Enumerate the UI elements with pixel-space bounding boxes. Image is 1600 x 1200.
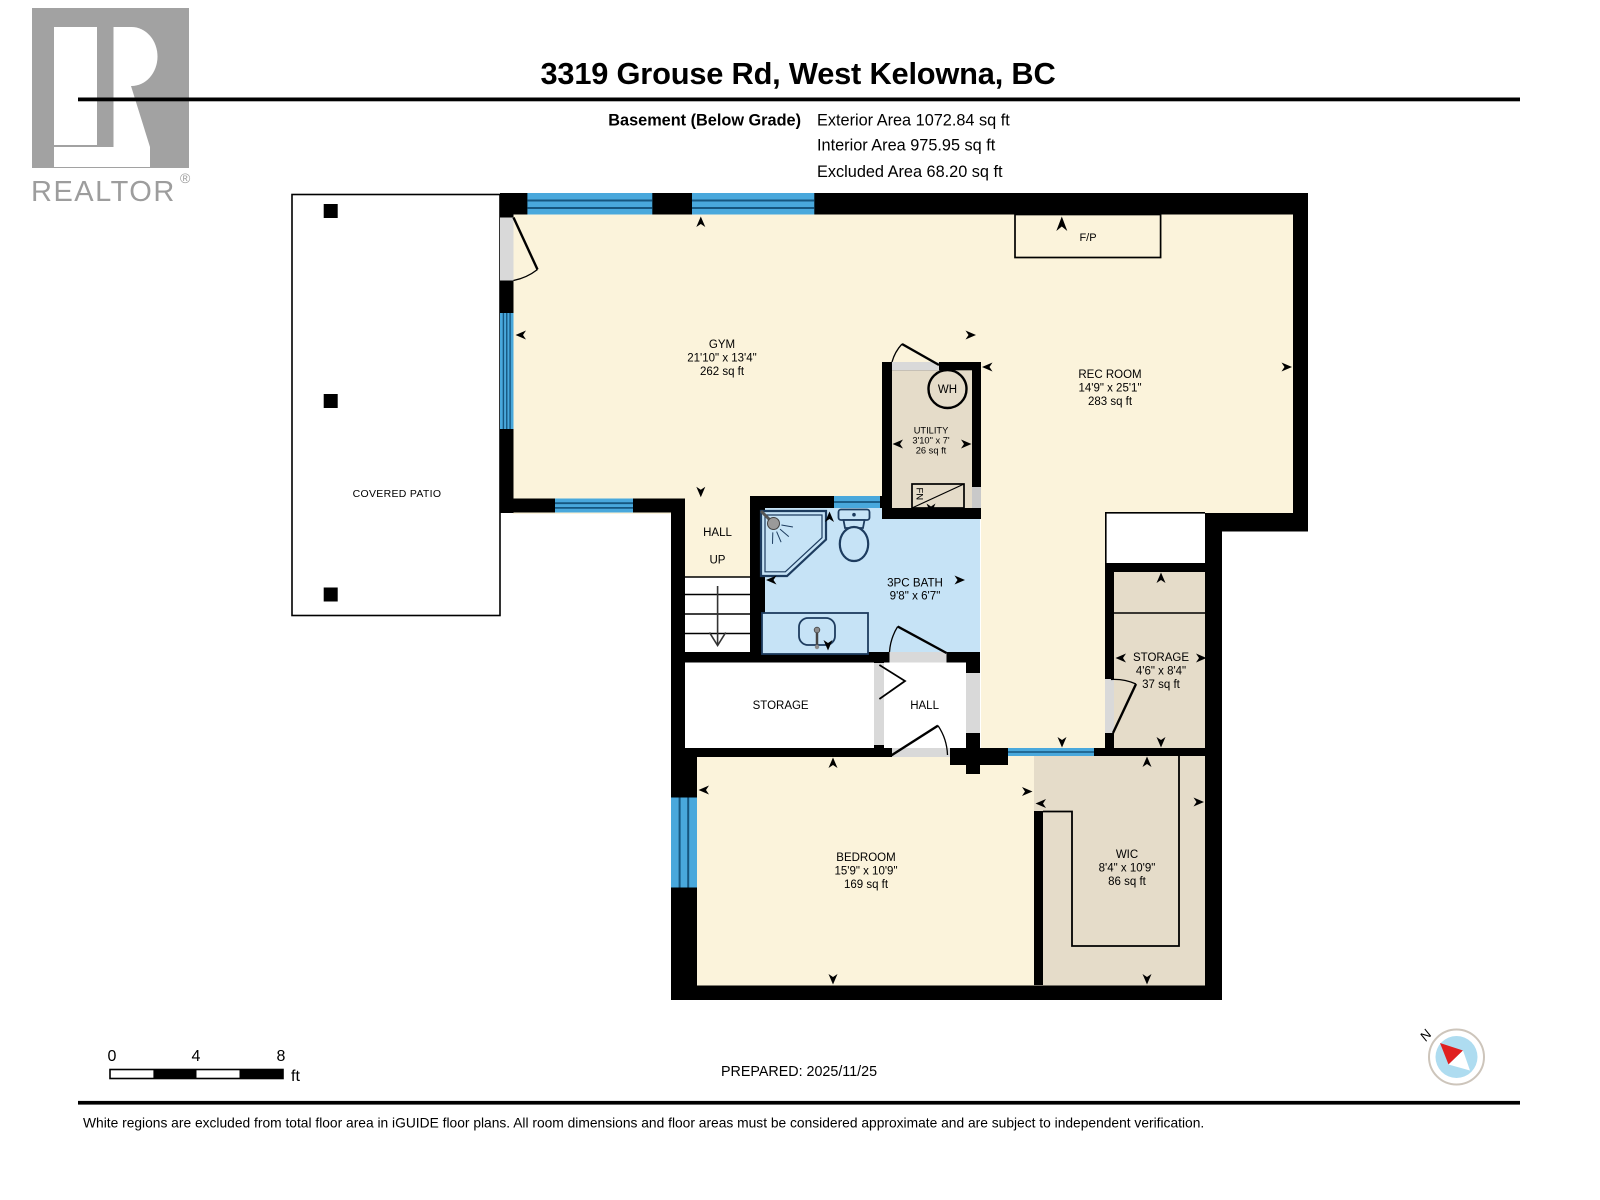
svg-text:STORAGE: STORAGE	[1133, 652, 1189, 664]
svg-text:262 sq ft: 262 sq ft	[700, 366, 745, 378]
svg-text:3319 Grouse Rd, West Kelowna,: 3319 Grouse Rd, West Kelowna, BC	[540, 56, 1055, 91]
svg-text:8: 8	[277, 1048, 286, 1065]
svg-text:0: 0	[108, 1048, 117, 1065]
svg-text:White regions are excluded fro: White regions are excluded from total fl…	[83, 1116, 1204, 1131]
svg-text:169 sq ft: 169 sq ft	[844, 879, 889, 891]
svg-text:F/P: F/P	[1079, 232, 1096, 244]
svg-text:WH: WH	[938, 384, 957, 396]
svg-text:21'10" x 13'4": 21'10" x 13'4"	[687, 353, 756, 365]
svg-text:HALL: HALL	[910, 700, 939, 712]
svg-text:ft: ft	[291, 1068, 300, 1085]
svg-text:3'10" x 7': 3'10" x 7'	[912, 436, 950, 446]
svg-text:N: N	[1417, 1027, 1435, 1044]
svg-text:4'6" x 8'4": 4'6" x 8'4"	[1136, 666, 1186, 678]
svg-text:8'4" x 10'9": 8'4" x 10'9"	[1099, 863, 1156, 875]
svg-text:BEDROOM: BEDROOM	[836, 852, 895, 864]
svg-text:UP: UP	[710, 555, 726, 567]
svg-text:14'9" x 25'1": 14'9" x 25'1"	[1078, 383, 1141, 395]
svg-text:PREPARED: 2025/11/25: PREPARED: 2025/11/25	[721, 1064, 877, 1080]
svg-text:UTILITY: UTILITY	[914, 426, 949, 436]
svg-text:26 sq ft: 26 sq ft	[916, 446, 947, 456]
svg-text:HALL: HALL	[703, 527, 732, 539]
svg-text:283 sq ft: 283 sq ft	[1088, 396, 1133, 408]
svg-text:REALTOR: REALTOR	[31, 176, 176, 208]
svg-text:Basement (Below Grade): Basement (Below Grade)	[608, 112, 801, 130]
svg-text:®: ®	[180, 170, 191, 186]
svg-text:STORAGE: STORAGE	[753, 700, 809, 712]
svg-text:Exterior Area 1072.84 sq ft: Exterior Area 1072.84 sq ft	[817, 112, 1010, 130]
svg-text:Interior Area 975.95 sq ft: Interior Area 975.95 sq ft	[817, 137, 996, 155]
svg-text:9'8" x 6'7": 9'8" x 6'7"	[890, 590, 941, 603]
svg-text:COVERED PATIO: COVERED PATIO	[353, 488, 442, 500]
svg-text:86 sq ft: 86 sq ft	[1108, 876, 1147, 888]
svg-text:4: 4	[192, 1048, 201, 1065]
svg-text:WIC: WIC	[1116, 849, 1138, 861]
svg-text:FN: FN	[914, 488, 925, 501]
svg-text:37 sq ft: 37 sq ft	[1142, 679, 1181, 691]
svg-text:GYM: GYM	[709, 339, 735, 351]
svg-text:Excluded Area 68.20 sq ft: Excluded Area 68.20 sq ft	[817, 163, 1003, 181]
svg-text:15'9" x 10'9": 15'9" x 10'9"	[834, 866, 897, 878]
svg-text:REC ROOM: REC ROOM	[1078, 369, 1141, 381]
svg-text:3PC BATH: 3PC BATH	[887, 577, 943, 590]
